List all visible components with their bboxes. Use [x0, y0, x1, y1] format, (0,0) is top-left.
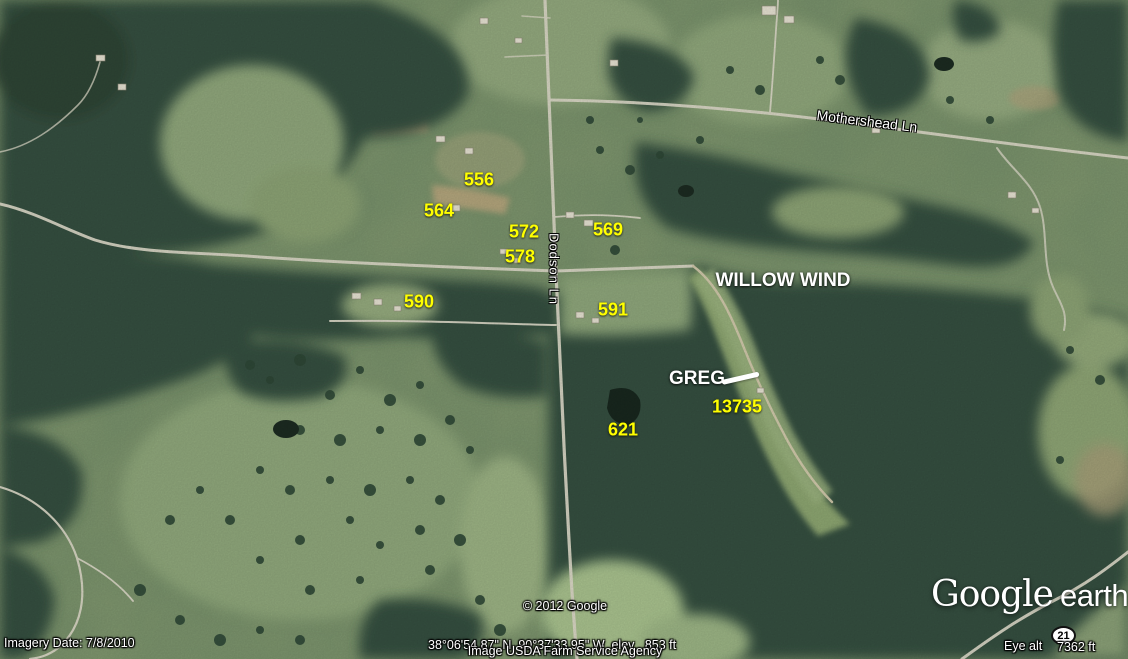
satellite-imagery — [0, 0, 1128, 659]
place-label-greg[interactable]: GREG — [669, 368, 725, 390]
logo-brand-text: Google — [931, 574, 1053, 615]
place-label-willow-wind[interactable]: WILLOW WIND — [715, 270, 850, 292]
eye-alt-label: Eye alt — [1004, 639, 1042, 653]
road-label-dodson-ln: Dodson Ln — [547, 233, 562, 305]
parcel-label-578[interactable]: 578 — [505, 247, 535, 268]
google-earth-logo: Google earth — [931, 574, 1128, 615]
parcel-label-13735[interactable]: 13735 — [712, 397, 762, 418]
google-earth-viewport[interactable]: 556 564 572 578 569 590 591 621 13735 WI… — [0, 0, 1128, 659]
imagery-date-text: Imagery Date: 7/8/2010 — [4, 636, 135, 650]
attribution-block: © 2012 Google Image USDA Farm Service Ag… — [468, 569, 663, 659]
eye-alt-value: 7362 ft — [1057, 640, 1095, 654]
parcel-label-572[interactable]: 572 — [509, 222, 539, 243]
parcel-label-590[interactable]: 590 — [404, 292, 434, 313]
imagery-source-text: Image USDA Farm Service Agency — [468, 644, 663, 659]
copyright-text: © 2012 Google — [468, 599, 663, 614]
parcel-label-621[interactable]: 621 — [608, 420, 638, 441]
parcel-label-556[interactable]: 556 — [464, 170, 494, 191]
logo-product-text: earth — [1060, 578, 1128, 614]
parcel-label-564[interactable]: 564 — [424, 201, 454, 222]
parcel-label-569[interactable]: 569 — [593, 220, 623, 241]
parcel-label-591[interactable]: 591 — [598, 300, 628, 321]
